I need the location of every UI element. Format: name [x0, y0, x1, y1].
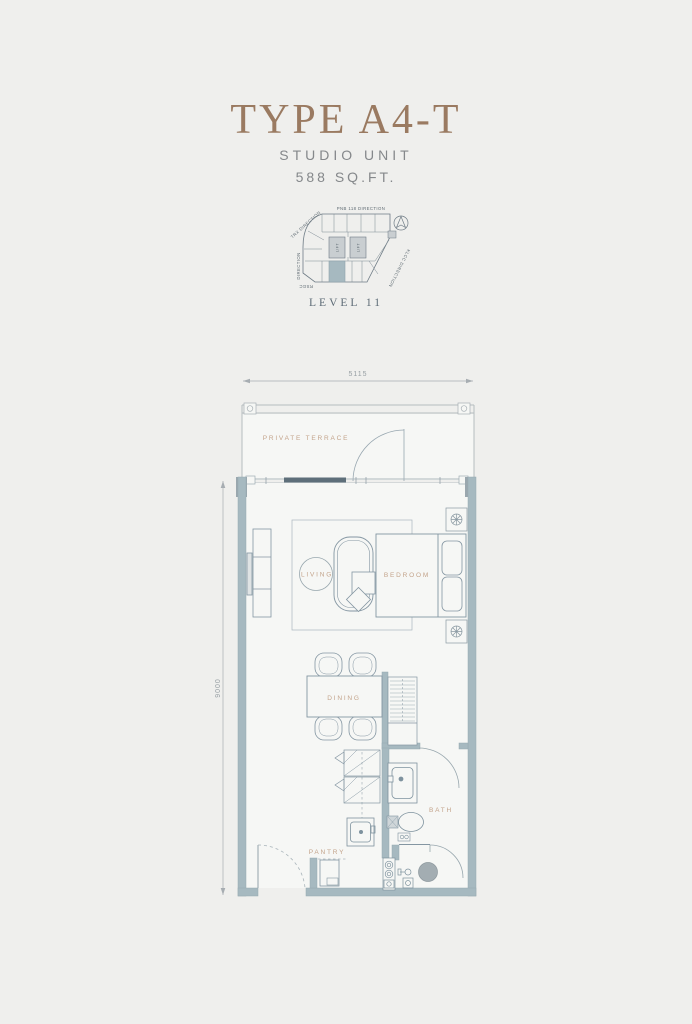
- sliding-door-panel: [284, 478, 346, 483]
- pantry-sink: [347, 818, 375, 846]
- pantry-label: PANTRY: [309, 849, 346, 856]
- floorplan-page: TYPE A4-T STUDIO UNIT 588 SQ.FT. LIFT LI…: [0, 0, 692, 1024]
- lift-label: LIFT: [357, 243, 361, 253]
- bath-vanity: [388, 763, 417, 803]
- key-plan-label-pnb: PNB 118 DIRECTION: [337, 206, 386, 211]
- key-plan-unit-lines: [304, 214, 390, 282]
- key-plan-lift-left: LIFT: [329, 237, 345, 258]
- page-title: TYPE A4-T: [0, 96, 692, 144]
- key-plan-diagram: LIFT LIFT PNB 118 DIRECTION TRX DIRECTIO…: [283, 197, 417, 297]
- pantry-fridge: [320, 860, 339, 886]
- dining-table: DINING: [307, 676, 382, 717]
- unit-area-label: 588 SQ.FT.: [0, 169, 692, 185]
- wall-bottom-left: [238, 888, 258, 896]
- floor-plan-drawing: 5115 9000: [185, 350, 515, 920]
- terrace-label: PRIVATE TERRACE: [263, 435, 350, 442]
- ac-grille-top: [446, 508, 467, 531]
- dimension-width: 5115: [243, 371, 473, 383]
- lift-label: LIFT: [336, 243, 340, 253]
- living-label-circle: LIVING: [300, 558, 334, 591]
- key-plan-lift-right: LIFT: [350, 237, 366, 258]
- dining-chair: [315, 653, 342, 677]
- wall-wardrobe: [382, 672, 388, 748]
- dimension-height: 9000: [215, 481, 225, 895]
- dining-chair: [315, 716, 342, 740]
- wall-left: [238, 477, 246, 896]
- laundry-fixtures: [383, 858, 395, 890]
- level-label: LEVEL 11: [0, 297, 692, 309]
- key-plan-label-klcc: KLCC DIRECTION: [388, 248, 411, 288]
- dining-label: DINING: [327, 695, 361, 702]
- wall-bath-jamb: [459, 743, 468, 749]
- dining-chair: [349, 716, 376, 740]
- sofa: [334, 537, 375, 612]
- wall-pantry-stub: [310, 858, 317, 888]
- tv-screen: [247, 553, 252, 595]
- bath-label: BATH: [429, 807, 453, 814]
- unit-type-label: STUDIO UNIT: [0, 147, 692, 163]
- key-plan-label-trx: TRX DIRECTION: [290, 210, 322, 240]
- key-plan-highlighted-unit: [329, 261, 345, 282]
- key-plan-label-direction: DIRECTION: [296, 252, 301, 279]
- dimension-width-value: 5115: [348, 371, 367, 378]
- shower-drain: [419, 863, 438, 882]
- wardrobe: [388, 677, 417, 745]
- key-plan-footprint: [303, 214, 390, 282]
- terrace-floor: [242, 414, 474, 478]
- dining-chair: [349, 653, 376, 677]
- compass-icon: [388, 216, 408, 238]
- wall-right: [468, 477, 476, 896]
- ac-grille-bottom: [446, 620, 467, 643]
- key-plan-label-rsgc: RSGC: [299, 284, 313, 289]
- dimension-height-value: 9000: [215, 678, 222, 698]
- living-label: LIVING: [301, 572, 333, 579]
- bedroom-label: BEDROOM: [384, 572, 430, 579]
